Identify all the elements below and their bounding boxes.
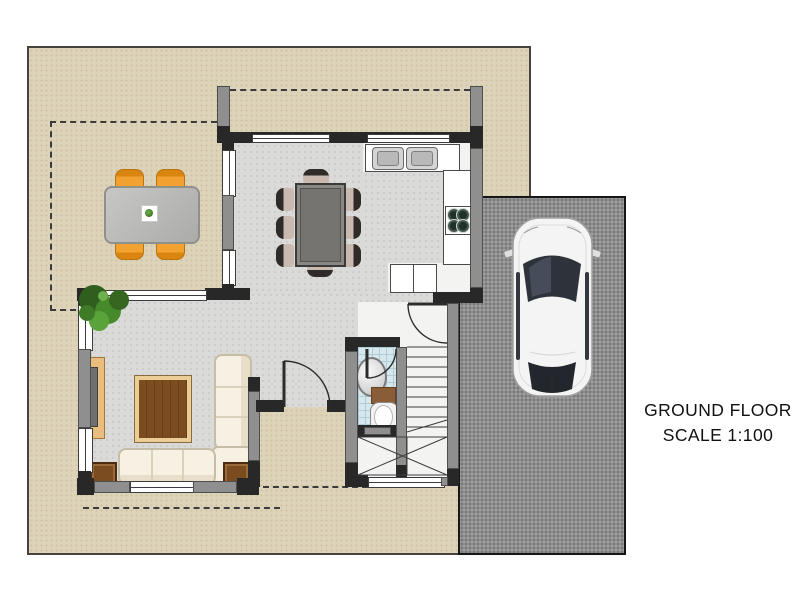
window	[78, 305, 93, 351]
kitchen-sink	[406, 147, 438, 170]
dining-chair	[276, 244, 294, 267]
window	[222, 150, 236, 197]
tv-screen	[90, 367, 98, 427]
kitchen-sink	[372, 147, 404, 170]
wall	[433, 292, 483, 303]
window	[368, 477, 445, 488]
wall	[352, 337, 400, 347]
coffee-table	[135, 376, 191, 442]
wall	[470, 132, 483, 148]
wall	[77, 478, 94, 495]
dining-chair	[276, 188, 294, 211]
wall	[447, 469, 459, 486]
wall	[345, 351, 358, 463]
upper-floor-dashed-outline	[83, 507, 280, 509]
dining-room-floor	[363, 172, 443, 263]
stove-icon	[445, 206, 472, 235]
wall	[470, 148, 483, 288]
wall	[396, 465, 407, 477]
upper-floor-dashed-outline	[50, 309, 76, 311]
wall	[205, 288, 250, 300]
wall	[447, 303, 459, 469]
sofa-bottom-section	[118, 448, 216, 485]
wall	[364, 427, 391, 435]
dining-chair	[276, 216, 294, 239]
window	[101, 290, 207, 301]
wall	[193, 481, 237, 493]
window	[367, 134, 450, 143]
wall	[248, 461, 260, 487]
wall	[78, 290, 91, 305]
dining-room-floor	[363, 263, 388, 292]
wall	[441, 477, 448, 486]
upper-floor-dashed-outline	[50, 121, 217, 123]
wall	[396, 347, 407, 477]
floor-plan: GROUND FLOOR SCALE 1:100	[0, 0, 800, 600]
sofa-right-section	[214, 354, 252, 450]
wall	[352, 475, 368, 487]
kitchen-cabinet	[390, 264, 437, 293]
dining-table	[295, 183, 346, 267]
wall	[248, 377, 260, 391]
wall	[256, 400, 284, 412]
wall	[94, 481, 130, 493]
wall	[78, 349, 91, 428]
table-centerpiece	[141, 205, 158, 222]
upper-floor-dashed-outline	[50, 121, 52, 311]
window	[78, 428, 93, 473]
upper-floor-dashed-outline	[230, 89, 470, 91]
window	[130, 481, 195, 493]
window	[252, 134, 330, 143]
wall	[222, 132, 234, 150]
plan-title-line1: GROUND FLOOR	[628, 398, 800, 423]
plan-title: GROUND FLOOR SCALE 1:100	[628, 398, 800, 448]
dining-chair	[303, 169, 329, 184]
wall	[222, 195, 234, 250]
plan-scale: SCALE 1:100	[628, 423, 800, 448]
driveway	[458, 196, 626, 555]
window	[222, 250, 236, 286]
